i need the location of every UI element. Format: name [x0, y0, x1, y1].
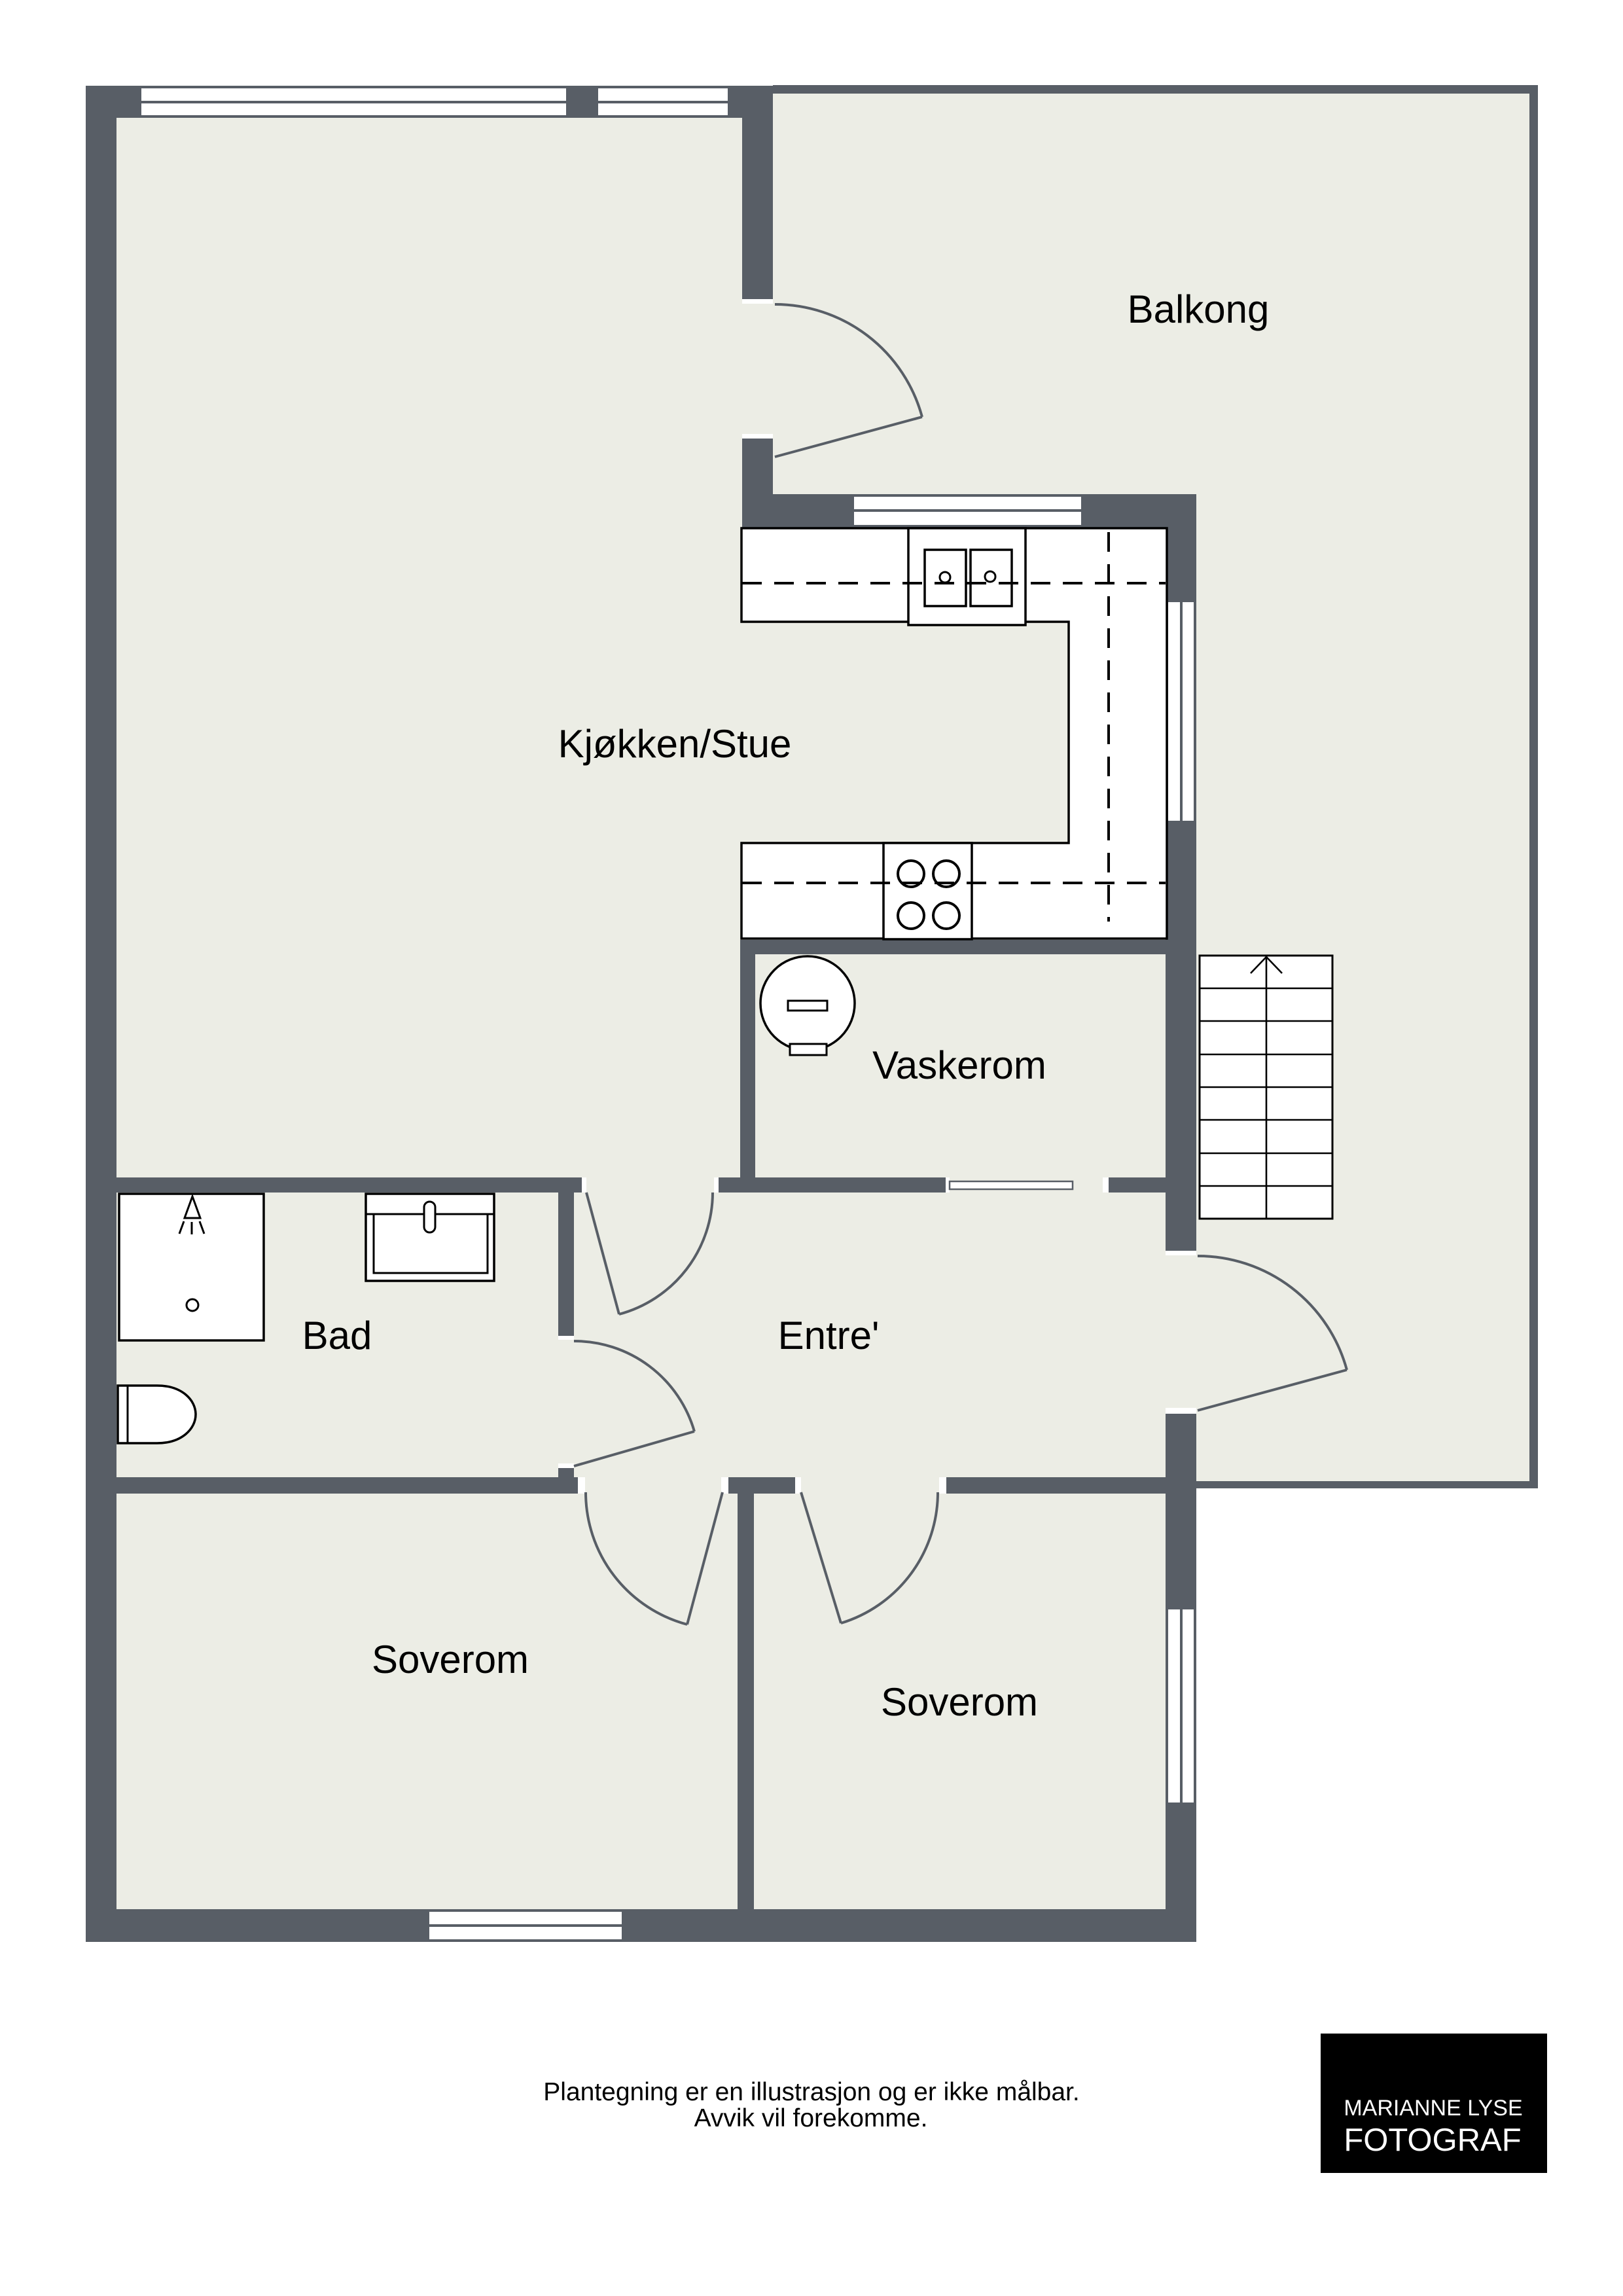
svg-text:MARIANNE LYSE: MARIANNE LYSE: [1344, 2096, 1522, 2121]
svg-text:FOTOGRAF: FOTOGRAF: [1344, 2123, 1521, 2158]
svg-text:Soverom: Soverom: [372, 1638, 529, 1681]
svg-text:Plantegning er en illustrasjon: Plantegning er en illustrasjon og er ikk…: [543, 2078, 1079, 2106]
svg-text:Vaskerom: Vaskerom: [872, 1043, 1046, 1087]
svg-text:Entre': Entre': [778, 1314, 880, 1357]
svg-text:Soverom: Soverom: [881, 1680, 1038, 1724]
svg-text:Kjøkken/Stue: Kjøkken/Stue: [558, 722, 792, 766]
svg-text:Avvik vil forekomme.: Avvik vil forekomme.: [694, 2104, 928, 2132]
svg-text:Bad: Bad: [302, 1314, 372, 1357]
svg-text:Balkong: Balkong: [1128, 287, 1270, 331]
